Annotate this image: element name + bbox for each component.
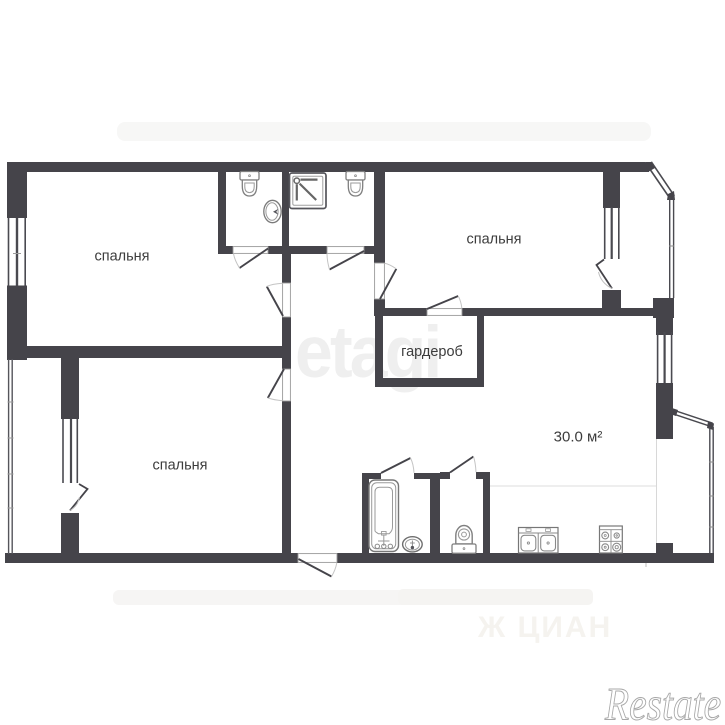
svg-text:спальня: спальня <box>466 232 521 248</box>
svg-text:Restate: Restate <box>604 678 721 725</box>
svg-text:спальня: спальня <box>94 249 149 265</box>
svg-text:спальня: спальня <box>152 458 207 474</box>
svg-text:Ж ЦИАН: Ж ЦИАН <box>477 611 612 644</box>
svg-text:гардероб: гардероб <box>401 344 463 360</box>
svg-text:30.0 м²: 30.0 м² <box>554 429 603 446</box>
